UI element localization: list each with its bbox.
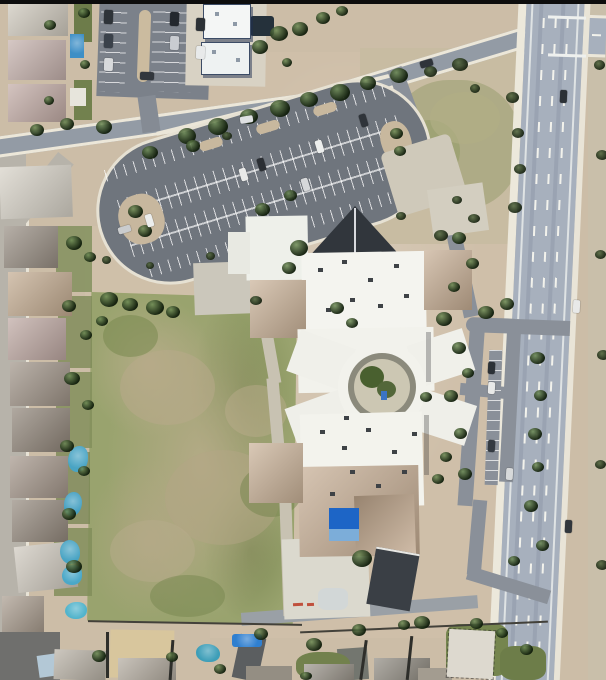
car	[488, 440, 496, 452]
car	[573, 300, 581, 313]
car	[238, 167, 248, 181]
car	[196, 46, 205, 59]
satellite-map-canvas[interactable]	[0, 0, 606, 680]
car	[104, 58, 113, 71]
car	[170, 12, 179, 26]
car	[140, 72, 154, 80]
car	[419, 58, 433, 68]
cars-layer	[0, 0, 606, 680]
car	[256, 157, 266, 171]
car	[488, 382, 496, 394]
car	[240, 115, 254, 124]
car	[565, 520, 573, 533]
car	[144, 213, 154, 227]
car	[104, 34, 113, 48]
car	[560, 90, 568, 103]
car	[358, 113, 368, 127]
car	[506, 468, 514, 480]
car	[104, 10, 113, 24]
car	[117, 224, 131, 234]
car	[314, 139, 324, 153]
car	[170, 36, 179, 50]
car	[300, 177, 310, 191]
car	[488, 362, 496, 374]
car	[196, 18, 205, 31]
